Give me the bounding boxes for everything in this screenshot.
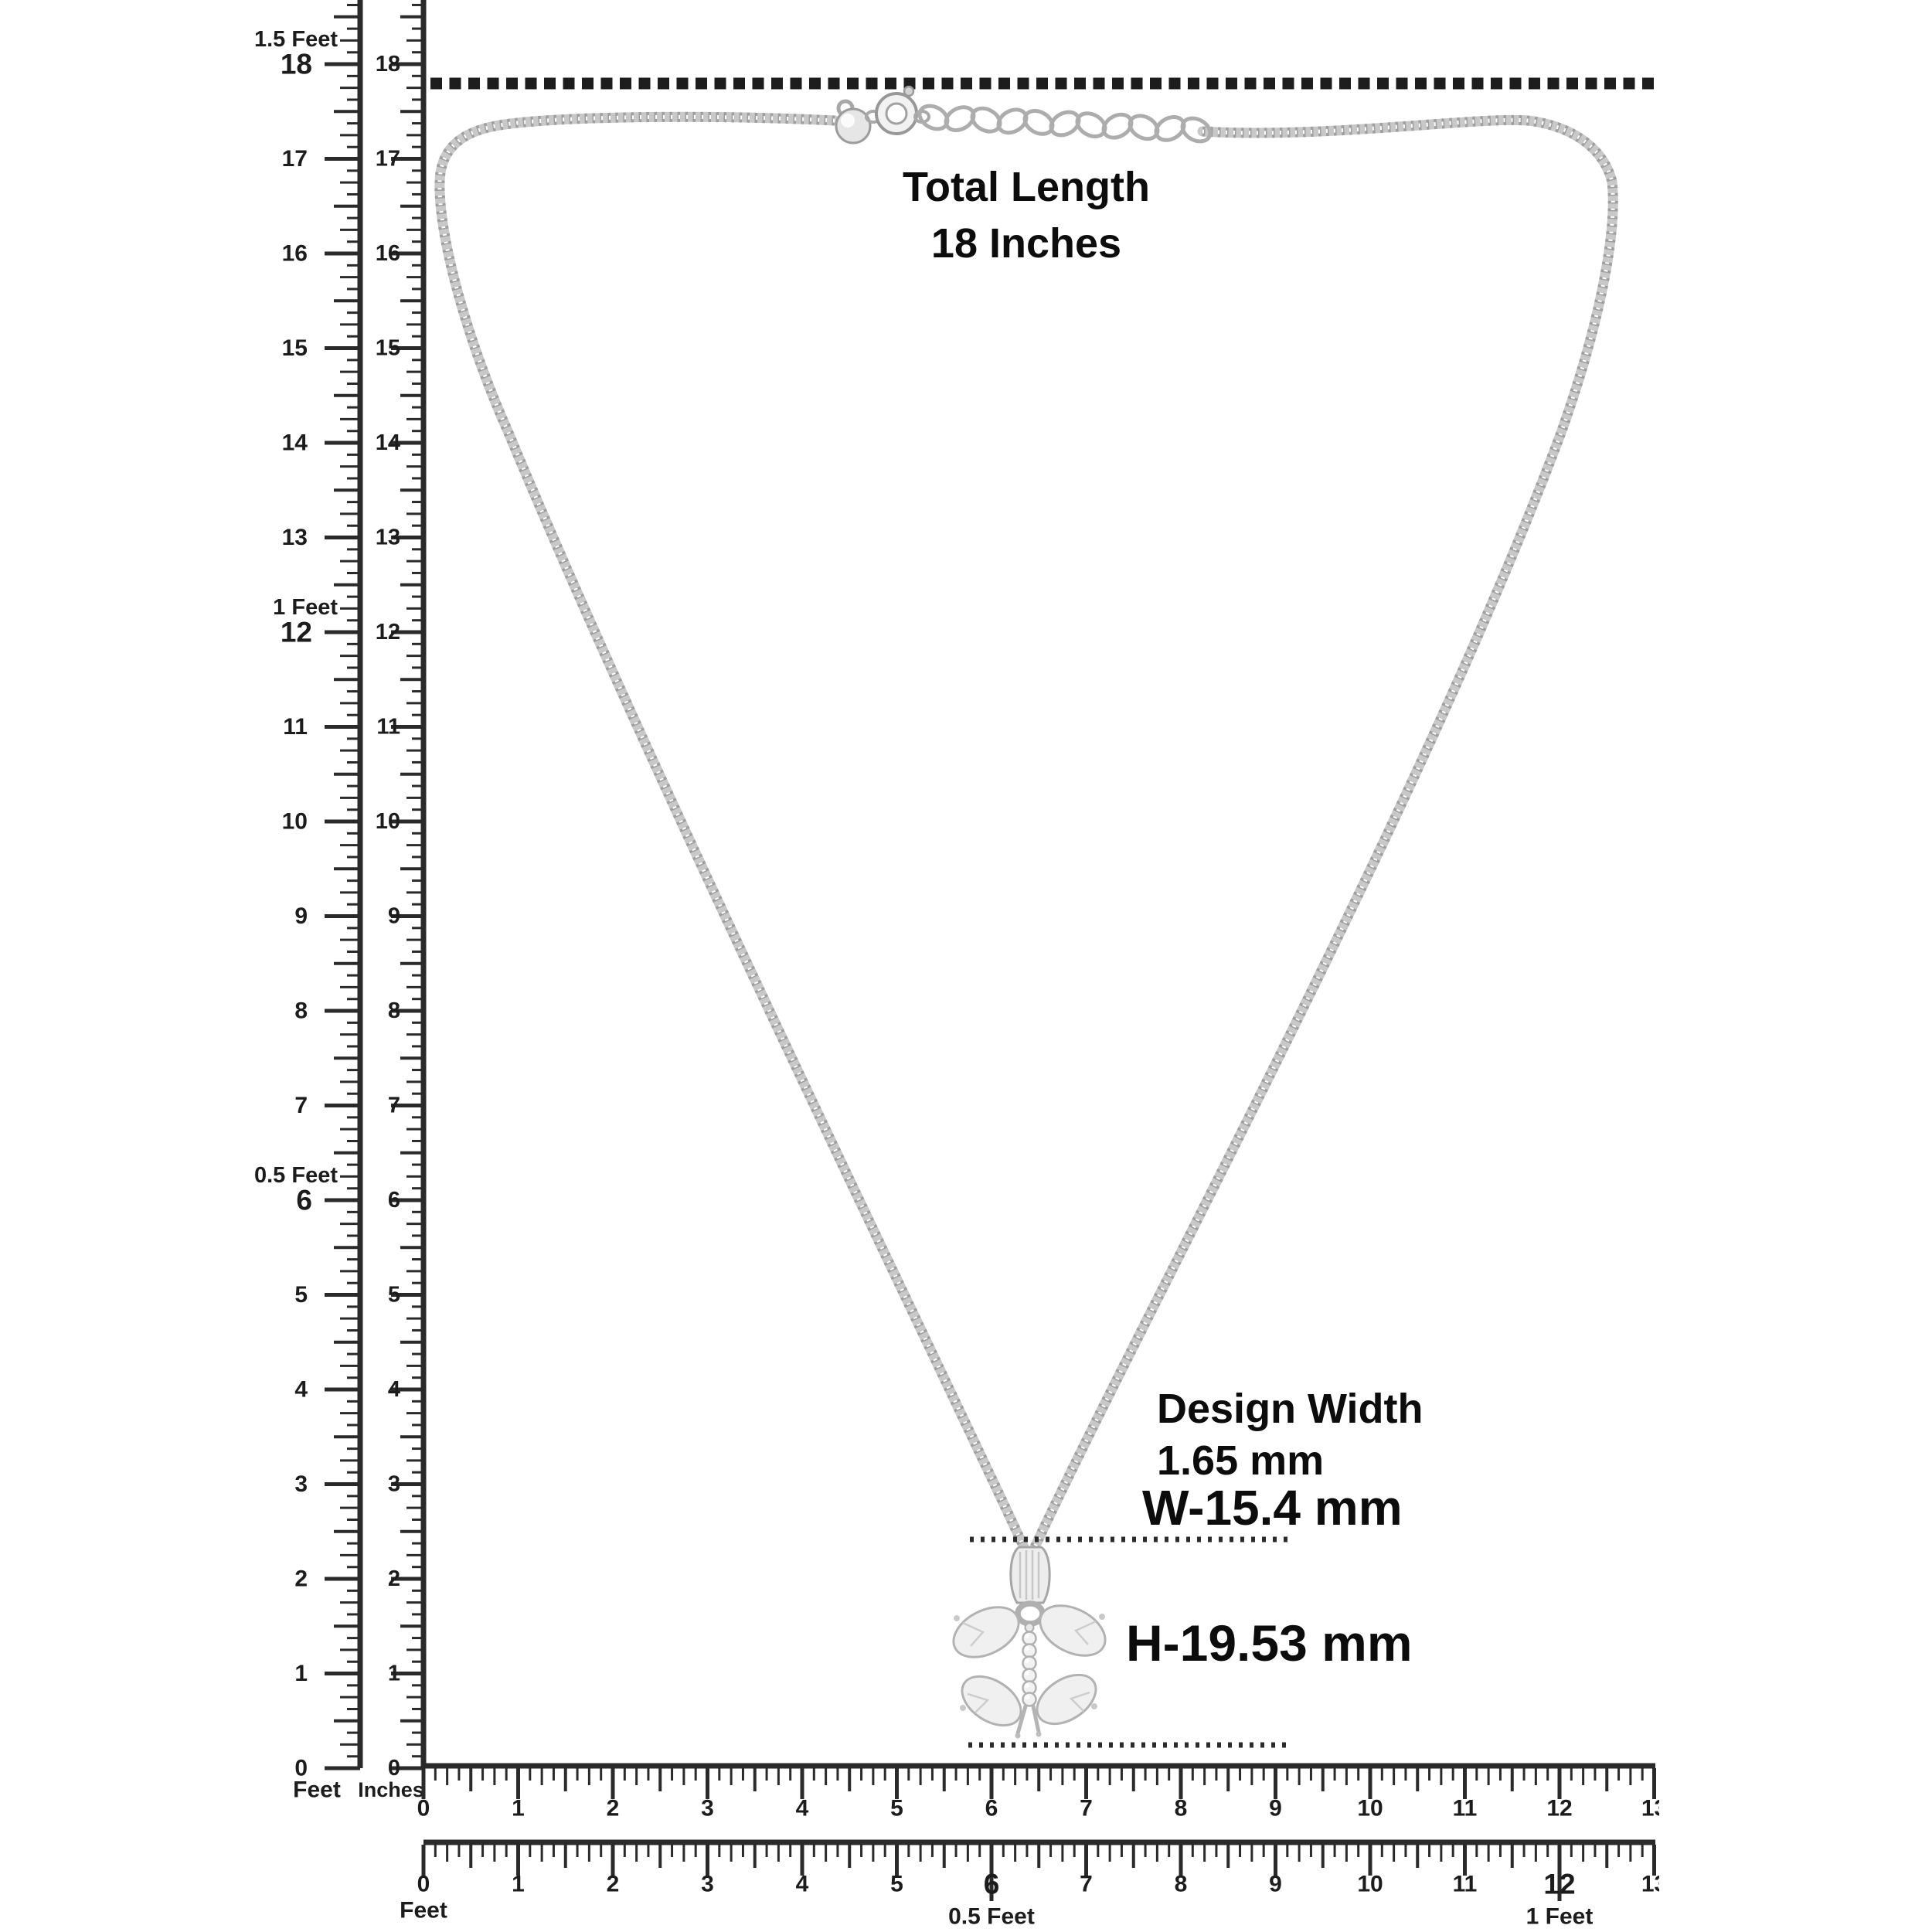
ruler-number: 9 <box>1269 1796 1282 1821</box>
ruler-number: 14 <box>282 430 308 456</box>
feet-mark-label: 1.5 Feet <box>254 27 338 52</box>
ruler-number: 0 <box>417 1872 430 1897</box>
stem-stone-sparkle <box>1025 1646 1029 1651</box>
stem-stone <box>1023 1693 1036 1706</box>
ruler-number: 9 <box>294 903 308 929</box>
stem-stone-sparkle <box>1025 1634 1029 1638</box>
ruler-number: 3 <box>388 1472 400 1497</box>
ruler-number: 11 <box>283 714 308 740</box>
ruler-number: 12 <box>1546 1796 1572 1821</box>
ruler-number: 2 <box>607 1872 620 1897</box>
pendant-width-label: W-15.4 mm <box>1142 1481 1403 1535</box>
ruler-number: 15 <box>282 335 308 361</box>
ruler-number: 8 <box>294 998 308 1024</box>
ruler-number: 10 <box>1357 1796 1383 1821</box>
ruler-number: 1 <box>388 1662 400 1686</box>
ruler-number: 12 <box>376 620 400 645</box>
stem-stone <box>1023 1657 1036 1670</box>
total-length-label-line1: Total Length <box>849 165 1204 210</box>
clasp-assembly <box>836 87 929 143</box>
stem-stone-sparkle <box>1025 1671 1029 1675</box>
bow-petal-upper-right <box>1032 1596 1114 1666</box>
bow-tail-dot-right <box>1036 1732 1042 1737</box>
ruler-number: 13 <box>282 525 308 550</box>
rope-chain-right <box>1035 120 1613 1547</box>
bow-petal-lower-right <box>1029 1665 1105 1733</box>
ruler-number: 10 <box>282 809 308 835</box>
ruler-number: 5 <box>388 1283 400 1308</box>
bottom-inches-ruler: 012345678910111213 <box>417 1766 1668 1821</box>
stem-stone-sparkle <box>1025 1658 1029 1663</box>
ruler-number: 1 <box>512 1872 525 1897</box>
feet-ruler-unit-label: Feet <box>400 1898 447 1923</box>
stem-stone-sparkle <box>1025 1695 1029 1699</box>
ruler-number: 18 <box>376 52 400 77</box>
ruler-number: 8 <box>1175 1872 1188 1897</box>
scene-canvas: 01234567891011121314151617180.5 Feet1 Fe… <box>0 0 1932 1932</box>
ruler-number: 11 <box>1453 1872 1478 1897</box>
spring-ring-lever <box>904 87 913 96</box>
extender-chain <box>916 101 1214 146</box>
ruler-number: 0 <box>388 1756 400 1781</box>
ruler-number: 3 <box>701 1872 714 1897</box>
design-width-label-line1: Design Width <box>1157 1386 1423 1432</box>
ruler-number: 4 <box>796 1796 809 1821</box>
vertical-feet-ruler: 01234567891011121314151617180.5 Feet1 Fe… <box>254 0 360 1803</box>
ruler-number: 7 <box>294 1093 308 1118</box>
ruler-number: 4 <box>388 1377 400 1402</box>
bow-center-stones <box>1023 1624 1036 1706</box>
ruler-number: 14 <box>376 430 400 455</box>
ruler-number: 2 <box>294 1566 308 1592</box>
rope-chain-left <box>440 117 1024 1547</box>
ruler-number: 11 <box>376 715 400 740</box>
ruler-number: 11 <box>1453 1796 1478 1821</box>
ruler-number: 10 <box>376 809 400 834</box>
extender-link <box>1179 114 1214 146</box>
feet-mark-label: 1 Feet <box>1526 1904 1594 1930</box>
ruler-number: 2 <box>388 1566 400 1591</box>
ruler-number: 17 <box>376 147 400 172</box>
ruler-number: 2 <box>607 1796 620 1821</box>
ruler-number: 12 <box>281 617 312 648</box>
feet-ruler-unit-label: Feet <box>293 1777 341 1803</box>
inches-ruler-unit-label: Inches <box>358 1778 424 1801</box>
ruler-number: 6 <box>296 1185 312 1216</box>
bow-petal-upper-left <box>945 1597 1027 1668</box>
ruler-number: 5 <box>890 1872 903 1897</box>
ruler-number: 6 <box>388 1188 400 1213</box>
ruler-number: 7 <box>388 1094 400 1118</box>
ruler-number: 7 <box>1080 1872 1093 1897</box>
ruler-number: 9 <box>1269 1872 1282 1897</box>
ruler-number: 8 <box>388 998 400 1023</box>
clasp-tag <box>836 109 870 143</box>
ruler-number: 4 <box>796 1872 809 1897</box>
ruler-number: 10 <box>1357 1872 1383 1897</box>
ruler-number: 6 <box>985 1796 998 1821</box>
ruler-number: 0 <box>417 1796 430 1821</box>
ruler-number: 1 <box>512 1796 525 1821</box>
ruler-number: 1 <box>294 1661 308 1686</box>
bow-prong-ll <box>960 1705 966 1711</box>
ruler-number: 13 <box>376 526 400 550</box>
ruler-number: 13 <box>1641 1796 1667 1821</box>
pendant-height-label: H-19.53 mm <box>1126 1615 1413 1672</box>
stem-stone <box>1023 1645 1036 1658</box>
ruler-number: 16 <box>376 241 400 266</box>
pendant-bail <box>1011 1547 1049 1603</box>
ruler-number: 13 <box>1641 1872 1667 1897</box>
feet-mark-label: 0.5 Feet <box>948 1904 1035 1930</box>
spring-ring-hole <box>886 104 906 124</box>
ruler-number: 15 <box>376 336 400 361</box>
design-width-label-line2: 1.65 mm <box>1157 1438 1324 1484</box>
ruler-number: 8 <box>1175 1796 1188 1821</box>
bow-prong-ul <box>954 1615 960 1621</box>
ruler-number: 9 <box>388 904 400 929</box>
stem-stone <box>1023 1669 1036 1682</box>
clasp-tag-highlight <box>841 114 855 128</box>
ruler-number: 5 <box>890 1796 903 1821</box>
feet-mark-label: 0.5 Feet <box>254 1163 338 1188</box>
stem-stone-sparkle <box>1025 1683 1029 1688</box>
bow-tail-dot-left <box>1015 1733 1021 1739</box>
ruler-number: 7 <box>1080 1796 1093 1821</box>
bow-prong-ur <box>1099 1614 1105 1620</box>
ruler-number: 3 <box>701 1796 714 1821</box>
ruler-number: 6 <box>984 1869 1000 1900</box>
bottom-feet-ruler: 0123456789101112130.5 Feet1 FeetFeet <box>400 1842 1667 1930</box>
pendant-bail-ring <box>1018 1604 1043 1624</box>
necklace-chain <box>440 87 1613 1547</box>
ruler-number: 4 <box>294 1377 308 1403</box>
ruler-number: 18 <box>281 49 312 80</box>
bow-prong-lr <box>1091 1703 1097 1709</box>
ruler-number: 12 <box>1543 1869 1575 1900</box>
ruler-number: 3 <box>294 1471 308 1497</box>
vertical-inches-ruler: 0123456789101112131415161718Inches <box>358 0 424 1801</box>
feet-mark-label: 1 Feet <box>273 595 338 620</box>
bow-pendant <box>945 1547 1114 1739</box>
stem-stone <box>1023 1632 1036 1645</box>
ruler-number: 5 <box>294 1282 308 1308</box>
total-length-label-line2: 18 Inches <box>849 221 1204 267</box>
necklace-dimension-diagram: 01234567891011121314151617180.5 Feet1 Fe… <box>0 0 1932 1932</box>
ruler-number: 16 <box>282 241 308 267</box>
ruler-number: 17 <box>282 146 308 172</box>
stem-stone <box>1026 1624 1034 1632</box>
